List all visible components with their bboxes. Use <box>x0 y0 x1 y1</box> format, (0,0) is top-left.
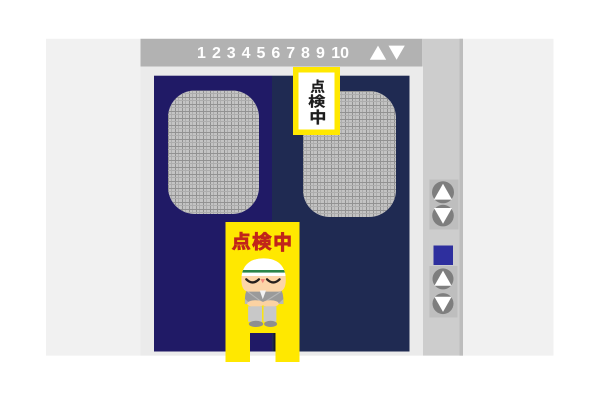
svg-text:10: 10 <box>331 45 349 62</box>
svg-text:9: 9 <box>316 45 325 62</box>
svg-text:8: 8 <box>301 45 310 62</box>
svg-text:2: 2 <box>212 45 221 62</box>
svg-text:7: 7 <box>286 45 295 62</box>
svg-text:5: 5 <box>257 45 266 62</box>
svg-text:6: 6 <box>271 45 280 62</box>
svg-text:3: 3 <box>227 45 236 62</box>
svg-text:4: 4 <box>242 45 251 62</box>
svg-text:1: 1 <box>197 45 206 62</box>
